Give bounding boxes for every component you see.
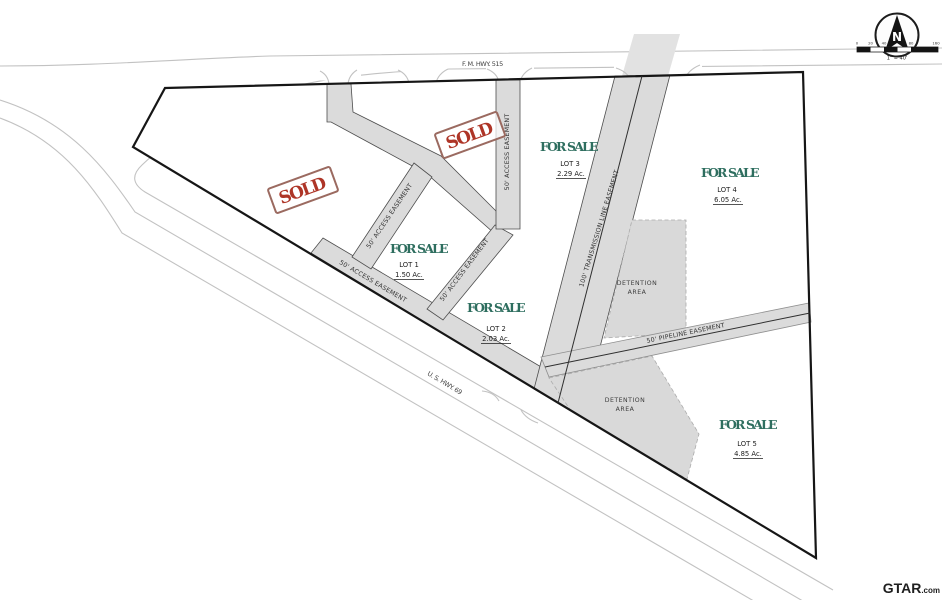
fm-hwy-515-label: F. M. HWY. 515 [462, 60, 504, 68]
lot-1-name: LOT 1 [399, 261, 419, 269]
scale-tick-label: 40 [882, 41, 887, 46]
access-easement-vertical-label: 50' ACCESS EASEMENT [504, 114, 511, 191]
gtar-logo-suffix: .com [921, 586, 940, 595]
lot-2-name: LOT 2 [486, 325, 506, 333]
svg-text:AREA: AREA [616, 406, 635, 413]
lot-4-name: LOT 4 [717, 186, 737, 194]
svg-text:AREA: AREA [628, 289, 647, 296]
compass-north-letter: N [892, 30, 902, 44]
scale-ratio-label: 1" = 40' [887, 56, 908, 62]
driveway-gap-1 [318, 72, 361, 81]
plat-drawing: F. M. HWY. 515 U. S. HWY. 69 50' ACCESS … [0, 0, 942, 600]
scale-tick-label: 20 [868, 41, 873, 46]
lot-5-name: LOT 5 [737, 440, 757, 448]
lot-1-for-sale-label: FOR SALE [390, 241, 450, 256]
lot-5-for-sale-label: FOR SALE [719, 417, 779, 432]
lot-2-acreage: 2.03 Ac. [482, 335, 510, 343]
site-plat-map: F. M. HWY. 515 U. S. HWY. 69 50' ACCESS … [0, 0, 942, 600]
lot-1-acreage: 1.50 Ac. [395, 271, 423, 279]
svg-text:DETENTION: DETENTION [605, 397, 646, 404]
scale-tick-label: 160 [932, 41, 940, 46]
lot-3-for-sale-label: FOR SALE [540, 139, 600, 154]
scale-tick-label: 80 [909, 41, 914, 46]
svg-text:DETENTION: DETENTION [617, 280, 658, 287]
transmission-corridor-north [622, 34, 680, 76]
lot-3-name: LOT 3 [560, 160, 580, 168]
gtar-logo-name: GTAR [883, 580, 922, 596]
lot-2-for-sale-label: FOR SALE [467, 300, 527, 315]
lot-4-acreage: 6.05 Ac. [714, 196, 742, 204]
lot-4-for-sale-label: FOR SALE [701, 165, 761, 180]
scale-tick-label: 0 [856, 41, 859, 46]
driveway-gap-2 [401, 66, 448, 74]
gtar-logo: GTAR.com [883, 580, 940, 596]
lot-3-acreage: 2.29 Ac. [557, 170, 585, 178]
lot-5-acreage: 4.85 Ac. [734, 450, 762, 458]
